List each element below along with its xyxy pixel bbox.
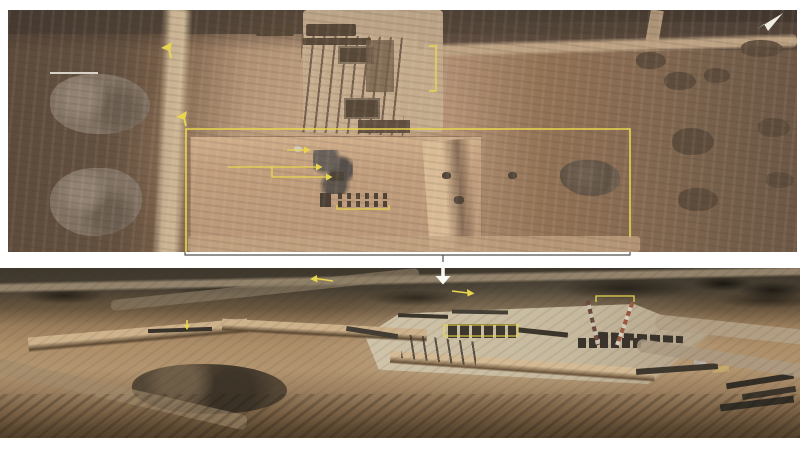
crane-mast-right <box>615 302 634 346</box>
connector-bracket <box>185 252 630 255</box>
overhead-satellite-photo <box>8 10 797 252</box>
oblique-aerial-photo <box>0 268 800 438</box>
crane-mast-left <box>586 300 600 346</box>
composite-satellite-graphic <box>0 0 800 450</box>
